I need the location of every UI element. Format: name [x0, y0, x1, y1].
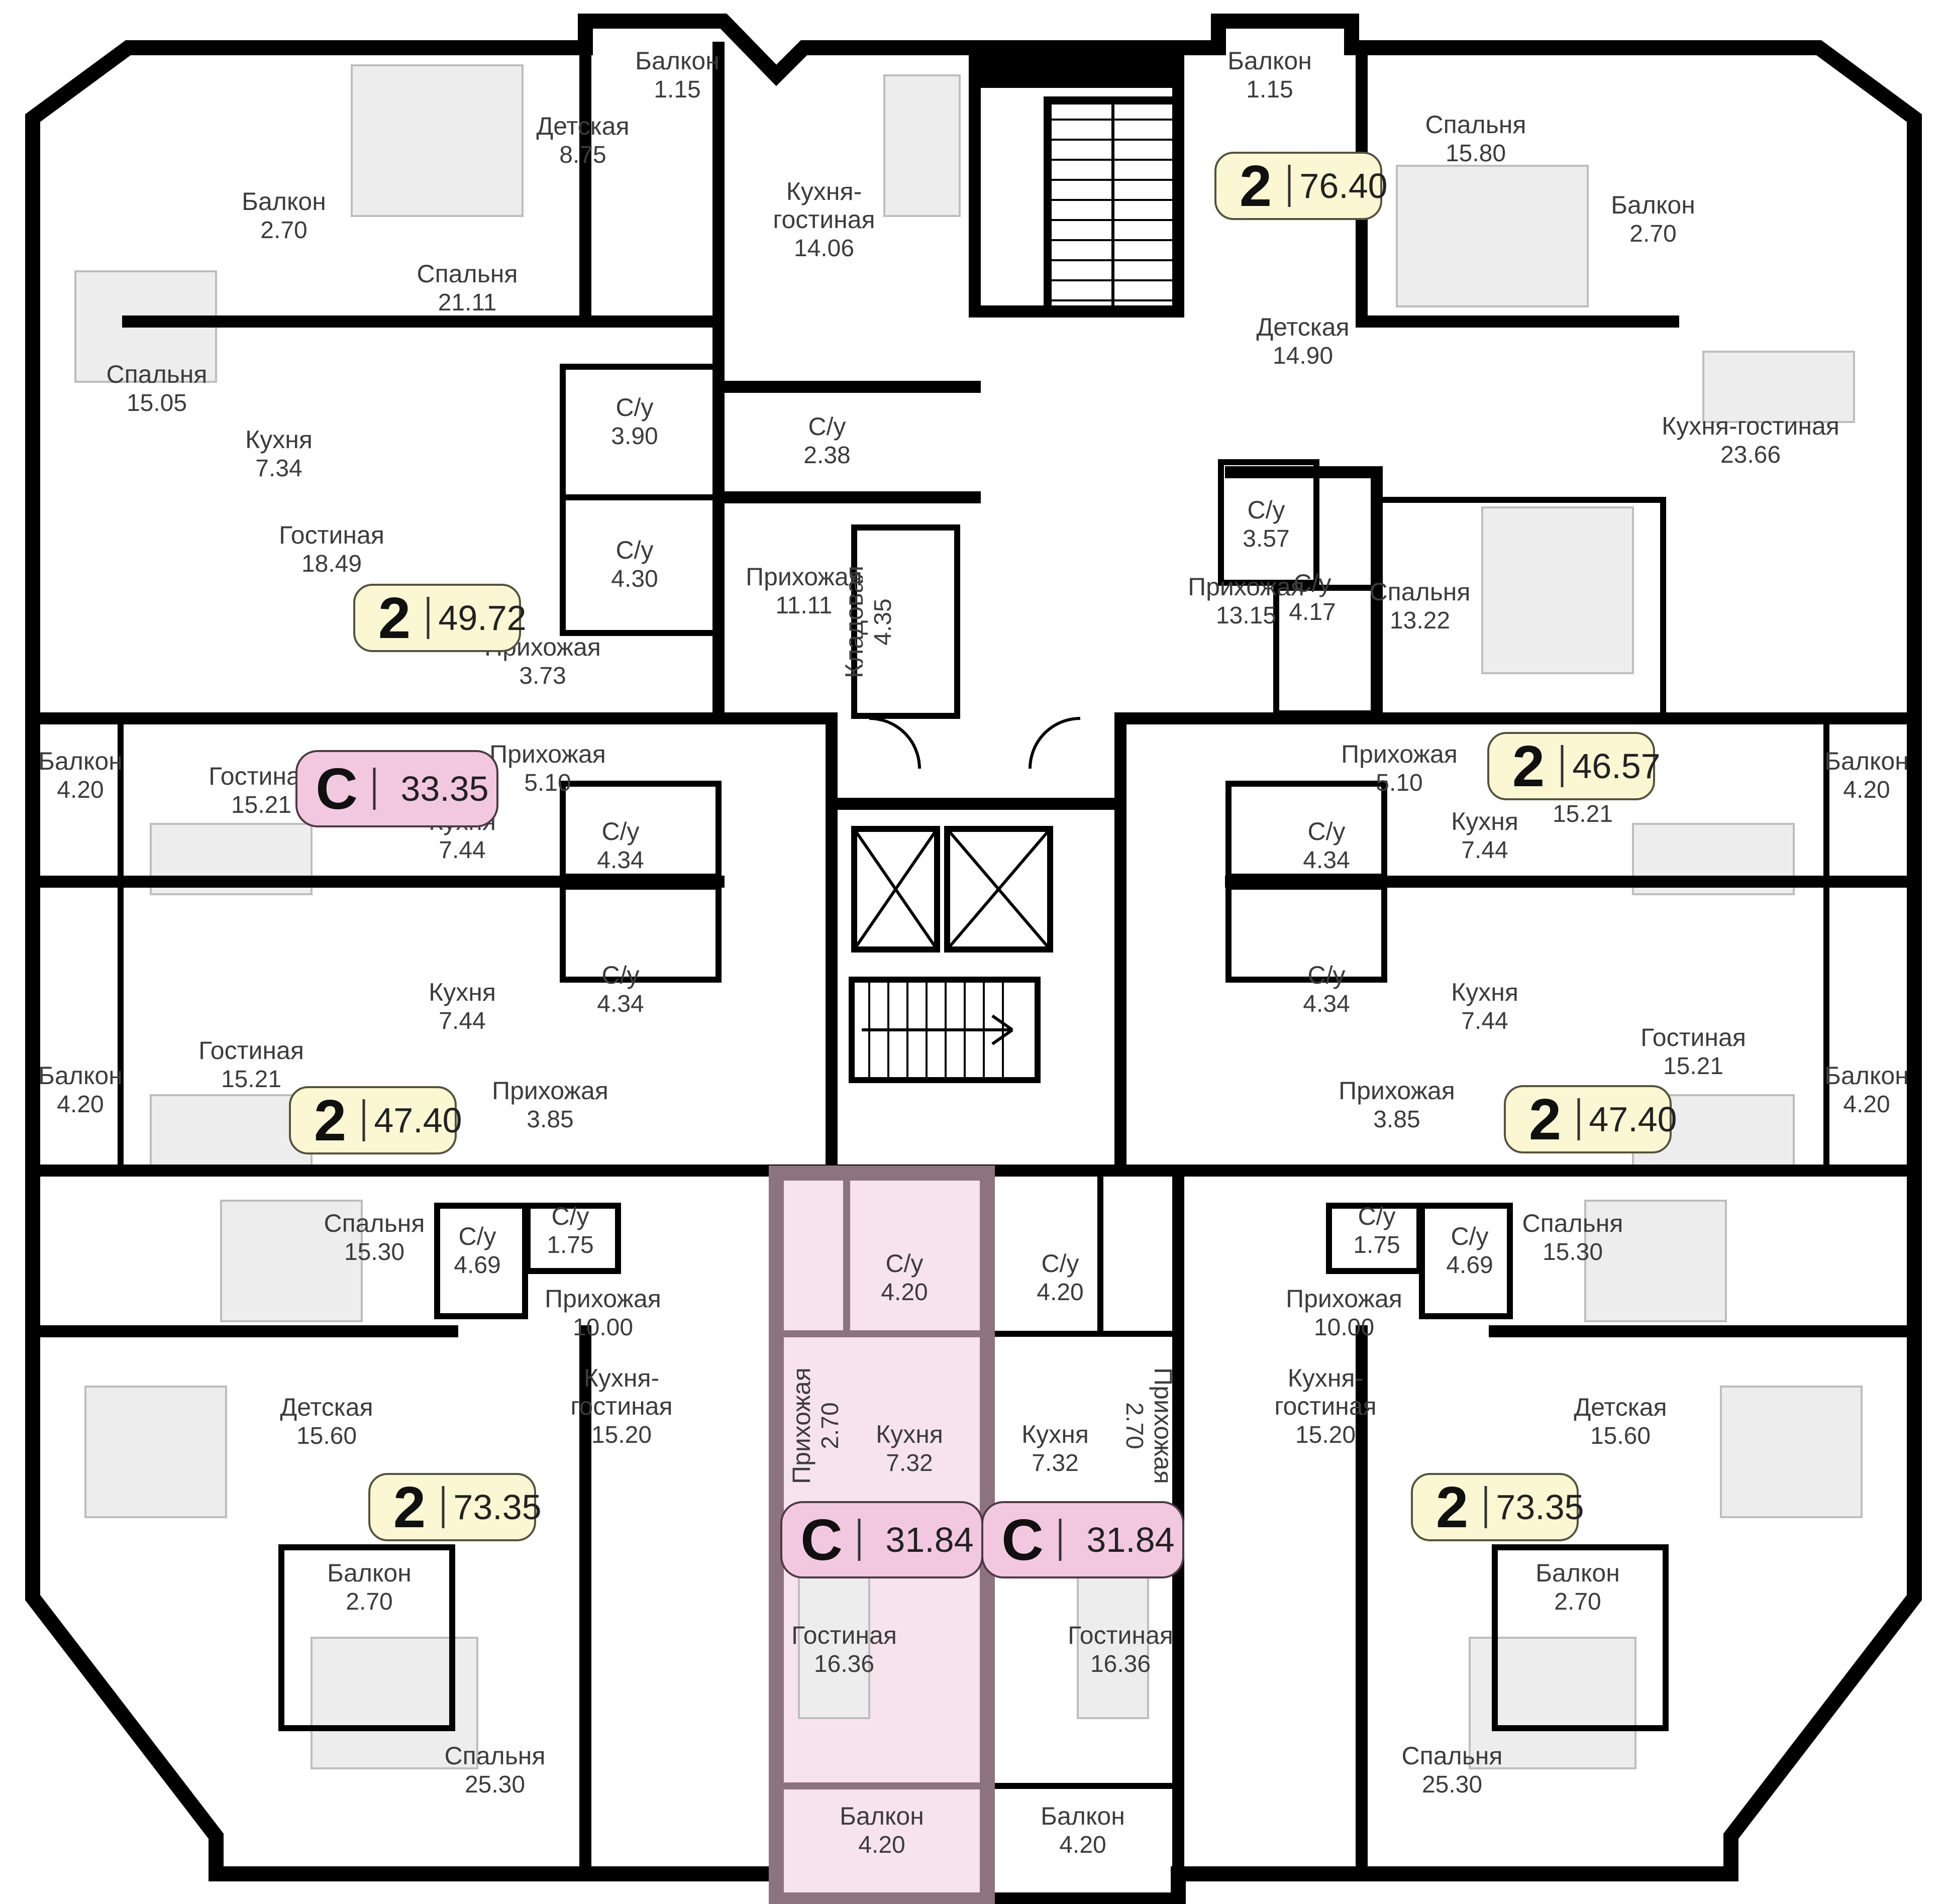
room-name: Прихожая — [489, 740, 606, 768]
room-label: Балкон1.15 — [635, 47, 720, 103]
room-label: Прихожая10.00 — [545, 1285, 661, 1341]
room-area: 15.20 — [591, 1422, 652, 1448]
room-name: Кухня — [876, 1420, 943, 1448]
room-name: Балкон — [840, 1802, 924, 1830]
room-name: Балкон — [635, 47, 720, 75]
room-area: 25.30 — [1422, 1771, 1482, 1798]
room-area: 4.20 — [57, 1091, 104, 1118]
room-name: С/у — [1308, 817, 1346, 845]
room-area: 15.21 — [1553, 801, 1613, 827]
room-label: Спальня15.80 — [1425, 111, 1526, 167]
room-area: 4.20 — [858, 1832, 905, 1858]
room-name: Гостиная — [1068, 1621, 1173, 1649]
room-name: Детская — [1574, 1393, 1667, 1421]
stair-arrow — [862, 1016, 1012, 1044]
badge-room-count: 2 — [1512, 733, 1545, 799]
room-name: Кухня — [1451, 978, 1518, 1006]
room-name: Кухня- — [786, 177, 862, 205]
room-name: Спальня — [1402, 1742, 1503, 1770]
room-area: 23.66 — [1720, 442, 1781, 468]
room-label: Прихожая3.85 — [492, 1077, 608, 1133]
room-name: Кухня-гостиная — [1662, 412, 1839, 440]
room-name: Прихожая — [1339, 1077, 1455, 1105]
stair-landing-wall — [975, 48, 1178, 88]
apartment-badge[interactable]: 249.72 — [354, 585, 527, 651]
room-name: С/у — [616, 536, 654, 564]
room-area: 4.20 — [1843, 1091, 1890, 1118]
room-area: 2.38 — [803, 442, 850, 469]
room-name: С/у — [886, 1249, 924, 1278]
room-label: Прихожая3.85 — [1339, 1077, 1455, 1133]
room-label: Прихожая13.15 — [1188, 573, 1304, 629]
apartment-badge[interactable]: 273.35 — [1412, 1474, 1584, 1540]
room-name: Спальня — [324, 1209, 425, 1237]
room-label: Кухня7.44 — [429, 978, 496, 1034]
badge-area: 46.57 — [1572, 747, 1660, 786]
room-area: 3.85 — [1373, 1106, 1420, 1133]
room-area: 4.30 — [611, 566, 658, 592]
room-area: 3.85 — [527, 1106, 573, 1133]
room-area: 4.34 — [1303, 991, 1350, 1017]
floor-plan-page: Балкон2.70Спальня15.05Спальня21.11Кухня7… — [0, 0, 1947, 1904]
badge-room-count: 2 — [1436, 1474, 1469, 1540]
room-area: 4.69 — [454, 1252, 500, 1279]
elevator-shafts — [854, 829, 1050, 949]
room-name: Балкон — [242, 187, 326, 216]
room-label: Балкон2.70 — [242, 187, 326, 244]
room-area: 4.20 — [1037, 1279, 1083, 1306]
room-name: Прихожая — [1286, 1285, 1402, 1313]
bed — [352, 65, 523, 216]
floor-plan: Балкон2.70Спальня15.05Спальня21.11Кухня7… — [0, 0, 1947, 1904]
room-area: 2.70 — [260, 217, 307, 244]
room-area: 1.15 — [654, 76, 700, 103]
sofa — [151, 1095, 312, 1166]
apartment-badge[interactable]: 247.40 — [1505, 1086, 1677, 1152]
room-area: 15.21 — [231, 792, 291, 818]
apartment-badge[interactable]: С31.84 — [982, 1502, 1183, 1577]
room-name: Детская — [280, 1393, 373, 1421]
badge-area: 73.35 — [453, 1488, 541, 1527]
room-name: Балкон — [1535, 1559, 1620, 1587]
room-label: Кухня7.34 — [245, 426, 313, 482]
badge-room-count: 2 — [1240, 153, 1272, 219]
room-name: Гостиная — [198, 1036, 304, 1065]
room-label: Прихожая2.70 — [1121, 1367, 1177, 1484]
apartment-badge[interactable]: С33.35 — [296, 751, 497, 826]
badge-area: 76.40 — [1299, 166, 1387, 205]
room-label: Балкон2.70 — [327, 1559, 412, 1615]
bed — [85, 1387, 226, 1517]
room-area: 7.34 — [255, 455, 302, 482]
room-name: С/у — [808, 412, 846, 441]
badge-area: 49.72 — [438, 598, 526, 638]
room-label: Балкон4.20 — [1041, 1802, 1125, 1858]
apartment-badge[interactable]: 276.40 — [1215, 153, 1388, 219]
room-name: С/у — [459, 1222, 496, 1250]
room-name: Гостиная — [791, 1621, 897, 1649]
badge-room-count: 2 — [1529, 1087, 1562, 1152]
room-name: Детская — [536, 112, 629, 140]
room-area: 5.10 — [524, 770, 571, 796]
badge-room-count: 2 — [378, 585, 411, 651]
room-area: 15.21 — [221, 1066, 281, 1093]
room-area: 14.90 — [1273, 343, 1333, 369]
room-name: С/у — [552, 1202, 589, 1230]
room-name: Балкон — [327, 1559, 412, 1587]
room-area: 15.21 — [1663, 1053, 1723, 1080]
room-area: 3.57 — [1243, 525, 1289, 552]
room-name: Спальня — [1425, 111, 1526, 139]
room-label: Балкон2.70 — [1611, 191, 1695, 247]
room-name: Балкон — [1611, 191, 1695, 219]
room-label: Детская15.60 — [280, 1393, 373, 1449]
room-label: Балкон4.20 — [1824, 1062, 1909, 1118]
room-label: Детская15.60 — [1574, 1393, 1667, 1449]
badge-area: 73.35 — [1496, 1488, 1584, 1527]
sofa — [1703, 352, 1854, 422]
room-name: С/у — [1042, 1249, 1079, 1278]
room-area: 7.44 — [439, 837, 485, 864]
apartment-badge[interactable]: 273.35 — [369, 1474, 542, 1540]
room-area: 15.30 — [344, 1239, 404, 1265]
room-area: 5.10 — [1376, 770, 1422, 796]
room-name: Балкон — [1041, 1802, 1125, 1830]
room-name: Детская — [1256, 313, 1349, 341]
apartment-badge[interactable]: 247.40 — [290, 1087, 462, 1153]
room-label: С/у3.57 — [1243, 496, 1289, 552]
room-name: гостиная — [570, 1392, 672, 1420]
room-area: 3.73 — [519, 663, 566, 689]
badge-room-count: С — [1001, 1507, 1044, 1572]
apartment-badge[interactable]: 246.57 — [1488, 733, 1661, 799]
bed — [1721, 1387, 1862, 1517]
room-name: гостиная — [1274, 1392, 1376, 1420]
room-area: 7.44 — [439, 1008, 485, 1034]
room-name: Прихожая — [1149, 1367, 1177, 1484]
room-label: С/у1.75 — [547, 1202, 593, 1258]
badge-area: 33.35 — [400, 769, 488, 808]
room-area: 2.70 — [817, 1402, 844, 1449]
room-name: Балкон — [1824, 1062, 1909, 1090]
badge-room-count: С — [316, 756, 358, 821]
room-name: Прихожая — [1188, 573, 1304, 601]
room-name: Кухня — [429, 978, 496, 1006]
room-name: Спальня — [445, 1742, 546, 1770]
room-label: С/у4.34 — [597, 961, 644, 1017]
room-label: С/у4.34 — [1303, 817, 1350, 874]
room-label: Спальня25.30 — [445, 1742, 546, 1798]
room-area: 7.32 — [886, 1450, 933, 1476]
room-label: С/у4.69 — [454, 1222, 500, 1279]
room-name: Балкон — [38, 747, 123, 775]
room-name: Кухня — [1451, 807, 1518, 835]
bed — [1482, 507, 1633, 673]
room-label: Балкон4.20 — [38, 747, 123, 803]
room-label: Спальня25.30 — [1402, 1742, 1503, 1798]
room-label: Кухня-гостиная14.06 — [773, 177, 875, 262]
room-area: 15.20 — [1295, 1422, 1356, 1448]
room-area: 4.35 — [870, 598, 896, 645]
room-label: Спальня15.05 — [107, 360, 208, 416]
room-area: 4.34 — [597, 991, 644, 1017]
room-area: 4.20 — [1843, 777, 1890, 803]
room-area: 16.36 — [1090, 1651, 1151, 1677]
room-area: 15.60 — [296, 1423, 357, 1449]
room-label: Балкон4.20 — [1824, 747, 1909, 803]
room-area: 1.75 — [547, 1232, 593, 1258]
room-name: Спальня — [107, 360, 208, 388]
badge-room-count: 2 — [393, 1474, 426, 1540]
room-label: Балкон2.70 — [1535, 1559, 1620, 1615]
room-area: 10.00 — [573, 1314, 633, 1341]
room-area: 4.20 — [1059, 1832, 1106, 1858]
room-area: 1.75 — [1353, 1232, 1400, 1258]
room-label: Кухня7.44 — [1451, 978, 1518, 1034]
room-name: Спальня — [417, 260, 518, 288]
room-area: 10.00 — [1314, 1314, 1374, 1341]
room-label: Балкон1.15 — [1227, 47, 1312, 103]
room-name: Гостиная — [1641, 1023, 1746, 1051]
room-area: 4.17 — [1289, 599, 1336, 625]
room-area: 8.75 — [559, 142, 606, 168]
room-name: Балкон — [1824, 747, 1909, 775]
room-label: Гостиная18.49 — [279, 521, 384, 577]
bed — [1397, 166, 1588, 306]
room-label: Детская14.90 — [1256, 313, 1349, 369]
room-area: 15.30 — [1543, 1239, 1603, 1265]
badge-area: 31.84 — [885, 1520, 973, 1559]
room-label: С/у3.90 — [611, 393, 658, 450]
room-label: Гостиная15.21 — [198, 1036, 304, 1093]
room-name: Спальня — [1522, 1209, 1623, 1237]
room-label: Прихожая10.00 — [1286, 1285, 1402, 1341]
room-area: 4.34 — [597, 847, 644, 874]
room-label: Кухня-гостиная23.66 — [1662, 412, 1839, 468]
badge-room-count: С — [800, 1507, 843, 1572]
room-label: С/у4.30 — [611, 536, 658, 592]
room-label: С/у4.20 — [1037, 1249, 1083, 1306]
apartment-badge[interactable]: С31.84 — [781, 1502, 982, 1577]
room-name: Прихожая — [492, 1077, 608, 1105]
room-label: Балкон4.20 — [38, 1062, 123, 1118]
door-arcs — [869, 718, 1080, 769]
room-name: С/у — [1294, 569, 1331, 597]
room-label: Кухня7.32 — [1021, 1420, 1089, 1476]
room-name: С/у — [1451, 1222, 1489, 1250]
room-name: Гостиная — [279, 521, 384, 549]
room-area: 21.11 — [438, 289, 497, 316]
room-label: Кладовая4.35 — [840, 566, 896, 678]
room-area: 2.70 — [346, 1589, 392, 1615]
room-label: Кухня7.44 — [1451, 807, 1518, 864]
room-name: С/у — [602, 817, 640, 845]
room-name: Прихожая — [545, 1285, 661, 1313]
room-area: 7.44 — [1461, 837, 1508, 864]
room-area: 4.20 — [57, 777, 104, 803]
room-area: 25.30 — [465, 1771, 525, 1798]
room-name: С/у — [602, 961, 640, 989]
room-name: Кухня — [245, 426, 313, 454]
room-label: С/у4.69 — [1446, 1222, 1493, 1279]
room-area: 2.70 — [1554, 1589, 1601, 1615]
room-area: 2.70 — [1121, 1402, 1148, 1449]
room-area: 7.32 — [1032, 1450, 1078, 1476]
room-label: С/у2.38 — [803, 412, 850, 469]
room-label: Спальня21.11 — [417, 260, 518, 316]
room-label: Спальня13.22 — [1370, 578, 1471, 634]
room-area: 7.44 — [1461, 1008, 1508, 1034]
room-name: С/у — [616, 393, 654, 421]
room-label: Прихожая5.10 — [489, 740, 606, 796]
room-name: Прихожая — [1341, 740, 1458, 768]
room-area: 14.06 — [794, 235, 854, 262]
room-name: гостиная — [773, 205, 875, 234]
room-area: 18.49 — [301, 551, 362, 577]
room-name: С/у — [1308, 961, 1346, 989]
room-area: 3.90 — [611, 423, 658, 450]
room-name: Спальня — [1370, 578, 1471, 606]
badge-area: 47.40 — [1589, 1100, 1677, 1139]
room-area: 13.15 — [1216, 602, 1276, 629]
room-name: С/у — [1358, 1202, 1396, 1230]
room-label: С/у4.34 — [597, 817, 644, 874]
room-area: 15.80 — [1446, 140, 1506, 167]
room-label: С/у1.75 — [1353, 1202, 1400, 1258]
room-name: С/у — [1248, 496, 1285, 524]
room-area: 15.05 — [127, 390, 187, 416]
room-name: Балкон — [1227, 47, 1312, 75]
room-name: Кухня — [1021, 1420, 1089, 1448]
room-area: 4.69 — [1446, 1252, 1493, 1279]
sofa — [884, 75, 960, 216]
room-label: Гостиная15.21 — [1641, 1023, 1746, 1080]
room-name: Балкон — [38, 1062, 123, 1090]
room-area: 1.15 — [1246, 76, 1293, 103]
badge-room-count: 2 — [314, 1088, 347, 1153]
room-name: Кладовая — [840, 566, 868, 678]
room-label: С/у4.34 — [1303, 961, 1350, 1017]
room-name: Кухня- — [1288, 1364, 1363, 1392]
room-area: 15.60 — [1590, 1423, 1651, 1449]
room-area: 2.70 — [1629, 221, 1676, 247]
badge-area: 47.40 — [374, 1101, 462, 1140]
room-area: 13.22 — [1390, 607, 1450, 634]
room-area: 16.36 — [814, 1651, 874, 1677]
badge-area: 31.84 — [1086, 1520, 1174, 1559]
room-area: 11.11 — [776, 592, 833, 619]
room-area: 4.34 — [1303, 847, 1350, 874]
room-name: Кухня- — [584, 1364, 659, 1392]
room-area: 4.20 — [881, 1279, 928, 1306]
room-name: Прихожая — [787, 1367, 815, 1484]
room-label: Прихожая5.10 — [1341, 740, 1458, 796]
